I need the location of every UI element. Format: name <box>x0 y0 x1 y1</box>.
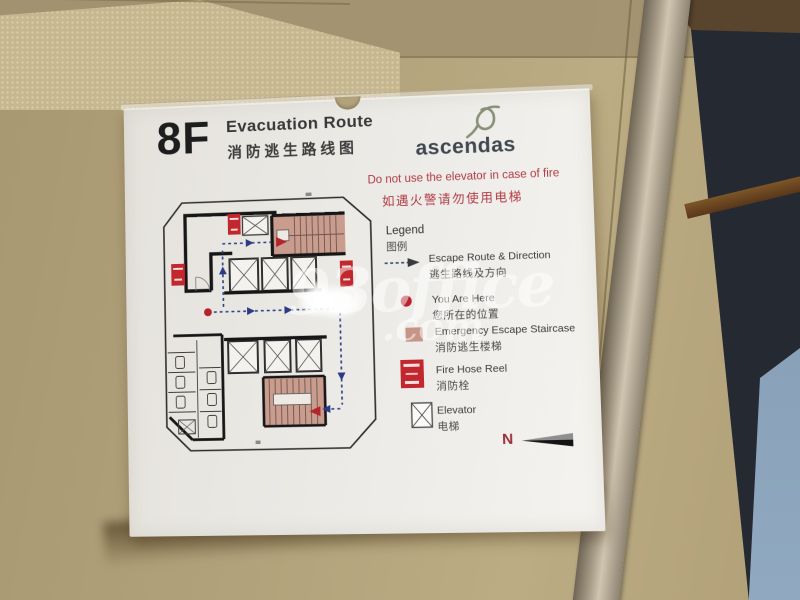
legend-title-en: Legend <box>386 224 425 237</box>
flash-glare <box>310 284 364 320</box>
sign-title-en: Evacuation Route <box>226 111 373 137</box>
legend-item-fire-hose: Fire Hose Reel <box>436 362 508 376</box>
elevator-icon <box>410 402 433 429</box>
brand-name: ascendas <box>415 133 516 161</box>
floor-label: 8F <box>156 111 211 166</box>
photo-scene: 8F Evacuation Route 消防逃生路线图 ascendas Do … <box>0 0 800 600</box>
legend-item-elevator: Elevator <box>437 404 477 417</box>
warning-text-en: Do not use the elevator in case of fire <box>367 167 559 186</box>
north-arrow-icon <box>519 431 575 448</box>
north-label: N <box>502 431 514 449</box>
fire-hose-icon <box>400 359 424 388</box>
watermark-suffix: .com <box>382 304 484 349</box>
warning-text-cn: 如遇火警请勿使用电梯 <box>382 186 523 210</box>
legend-item-fire-hose-cn: 消防栓 <box>436 378 470 394</box>
acrylic-thumb-notch <box>335 96 361 110</box>
you-are-here-marker <box>204 308 212 316</box>
legend-item-elevator-cn: 电梯 <box>437 418 460 434</box>
sign-title-cn: 消防逃生路线图 <box>227 137 358 163</box>
